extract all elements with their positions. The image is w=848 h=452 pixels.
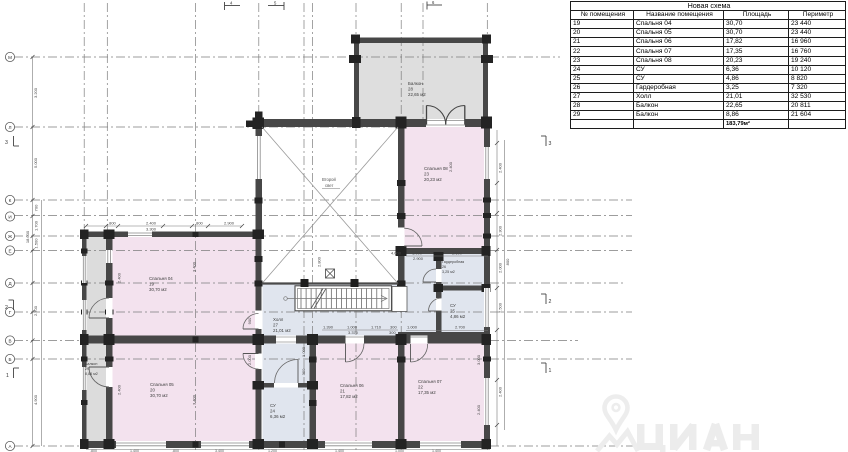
svg-text:Второй: Второй (322, 177, 337, 182)
svg-text:3,25 м2: 3,25 м2 (442, 270, 455, 274)
svg-text:Л: Л (8, 125, 11, 130)
svg-text:Спальня 07: Спальня 07 (418, 379, 442, 384)
svg-text:2.900: 2.900 (224, 221, 235, 226)
svg-text:2.400: 2.400 (117, 384, 122, 395)
svg-text:5: 5 (274, 1, 277, 6)
svg-text:1: 1 (549, 368, 552, 374)
svg-text:2.400: 2.400 (498, 162, 503, 173)
svg-text:19: 19 (149, 282, 154, 287)
svg-text:23: 23 (424, 172, 429, 177)
svg-text:1.000: 1.000 (347, 325, 358, 330)
svg-text:20,23 м2: 20,23 м2 (424, 177, 442, 182)
svg-text:1.000: 1.000 (301, 346, 306, 357)
svg-text:.800: .800 (108, 221, 117, 226)
svg-text:Балкон: Балкон (408, 81, 423, 86)
svg-text:22: 22 (418, 385, 423, 390)
svg-text:3: 3 (549, 141, 552, 147)
svg-text:Спальня 06: Спальня 06 (340, 383, 364, 388)
svg-text:6,36 м2: 6,36 м2 (270, 414, 286, 419)
svg-text:2: 2 (549, 299, 552, 305)
svg-text:Е: Е (8, 248, 11, 253)
svg-text:Холл: Холл (273, 317, 284, 322)
svg-text:30,70 м2: 30,70 м2 (149, 287, 167, 292)
svg-text:4.000: 4.000 (391, 251, 402, 256)
svg-text:СУ: СУ (270, 403, 276, 408)
svg-text:1: 1 (6, 373, 9, 379)
svg-text:20: 20 (150, 388, 155, 393)
svg-text:1.390: 1.390 (323, 325, 334, 330)
svg-text:700: 700 (34, 204, 39, 211)
svg-text:21,01 м2: 21,01 м2 (273, 328, 291, 333)
svg-text:2.000: 2.000 (498, 262, 503, 273)
svg-text:К: К (9, 198, 12, 203)
svg-text:2.800: 2.800 (317, 256, 322, 267)
svg-text:Гардеробная: Гардеробная (442, 260, 464, 264)
svg-text:1.500: 1.500 (34, 238, 39, 249)
svg-text:1.000: 1.000 (407, 325, 418, 330)
svg-text:22,65 м2: 22,65 м2 (408, 92, 426, 97)
svg-text:25: 25 (450, 309, 455, 314)
svg-text:2.600: 2.600 (452, 251, 463, 256)
svg-text:6: 6 (432, 0, 435, 5)
svg-text:4.900: 4.900 (33, 394, 38, 405)
svg-text:1.000: 1.000 (412, 251, 423, 256)
svg-text:2.900: 2.900 (413, 256, 424, 261)
svg-text:3.200: 3.200 (33, 87, 38, 98)
svg-text:Б: Б (8, 357, 11, 362)
svg-text:2: 2 (5, 305, 8, 311)
svg-text:М: М (8, 55, 12, 60)
svg-text:3.300: 3.300 (146, 227, 157, 232)
svg-text:26: 26 (442, 265, 446, 269)
svg-text:4,86 м2: 4,86 м2 (450, 314, 466, 319)
svg-text:5.000: 5.000 (33, 157, 38, 168)
svg-text:2.400: 2.400 (498, 386, 503, 397)
svg-text:2.400: 2.400 (448, 161, 453, 172)
svg-text:1.710: 1.710 (371, 325, 382, 330)
svg-text:Спальня 08: Спальня 08 (424, 166, 448, 171)
svg-text:300: 300 (389, 330, 396, 335)
svg-text:свет: свет (325, 183, 333, 188)
svg-text:28: 28 (408, 87, 413, 92)
svg-text:2.400: 2.400 (117, 272, 122, 283)
svg-text:2.700: 2.700 (33, 305, 38, 316)
svg-text:Спальня 04: Спальня 04 (149, 276, 173, 281)
svg-text:21: 21 (340, 389, 345, 394)
svg-text:800: 800 (505, 258, 510, 265)
svg-text:3.370: 3.370 (348, 330, 359, 335)
svg-text:1.700: 1.700 (34, 220, 39, 231)
svg-text:СУ: СУ (450, 303, 456, 308)
svg-text:3.400: 3.400 (192, 261, 197, 272)
svg-text:2.000: 2.000 (247, 354, 252, 365)
svg-text:24: 24 (270, 409, 275, 414)
svg-text:17,35 м2: 17,35 м2 (418, 390, 436, 395)
svg-text:900: 900 (247, 317, 252, 324)
svg-text:2.500: 2.500 (498, 302, 503, 313)
svg-text:И: И (8, 214, 11, 219)
svg-text:В: В (8, 338, 11, 343)
svg-text:Спальня 05: Спальня 05 (150, 382, 174, 387)
svg-text:2.400: 2.400 (476, 404, 481, 415)
svg-text:30,70 м2: 30,70 м2 (150, 393, 168, 398)
svg-text:300: 300 (390, 325, 397, 330)
svg-text:2.700: 2.700 (455, 325, 466, 330)
svg-text:Балкон: Балкон (85, 362, 97, 366)
svg-text:3.000: 3.000 (476, 354, 481, 365)
svg-text:18.000: 18.000 (25, 230, 30, 243)
svg-text:3: 3 (5, 140, 8, 146)
svg-text:29: 29 (85, 367, 89, 371)
svg-text:300: 300 (301, 368, 306, 375)
svg-text:4: 4 (230, 1, 233, 6)
svg-text:2.300: 2.300 (498, 225, 503, 236)
svg-text:3.400: 3.400 (192, 394, 197, 405)
svg-text:27: 27 (273, 323, 278, 328)
svg-text:.800: .800 (195, 221, 204, 226)
svg-text:17,82 м2: 17,82 м2 (340, 394, 358, 399)
svg-text:8,86 м2: 8,86 м2 (85, 372, 98, 376)
svg-text:2.400: 2.400 (146, 221, 157, 226)
